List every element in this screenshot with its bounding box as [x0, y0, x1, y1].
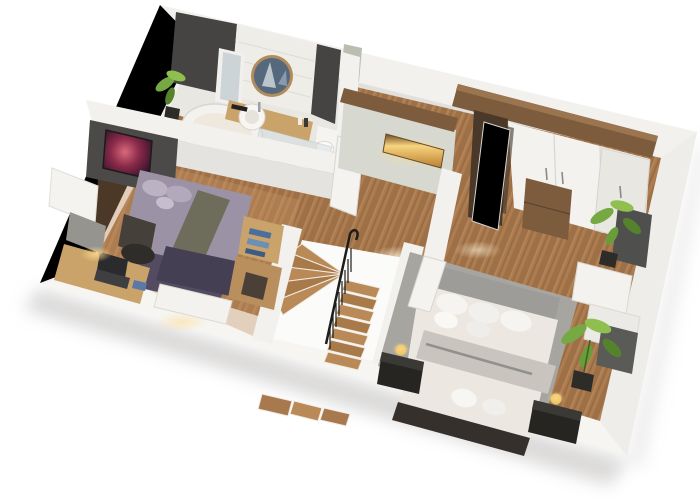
- round-mirror: [251, 55, 293, 97]
- bottle: [298, 116, 302, 125]
- lamp-glow: [392, 342, 410, 356]
- floorplan-render: [0, 0, 700, 498]
- lamp-glow: [547, 391, 565, 405]
- bottle-dark: [304, 118, 308, 127]
- bedroom-right-light-pool: [454, 241, 502, 259]
- wall-light-glow: [80, 246, 112, 262]
- floorplan-svg: [0, 0, 700, 498]
- mirror-cabinet: [215, 48, 245, 107]
- wall-tv-panel: [612, 206, 652, 268]
- faucet: [258, 102, 261, 112]
